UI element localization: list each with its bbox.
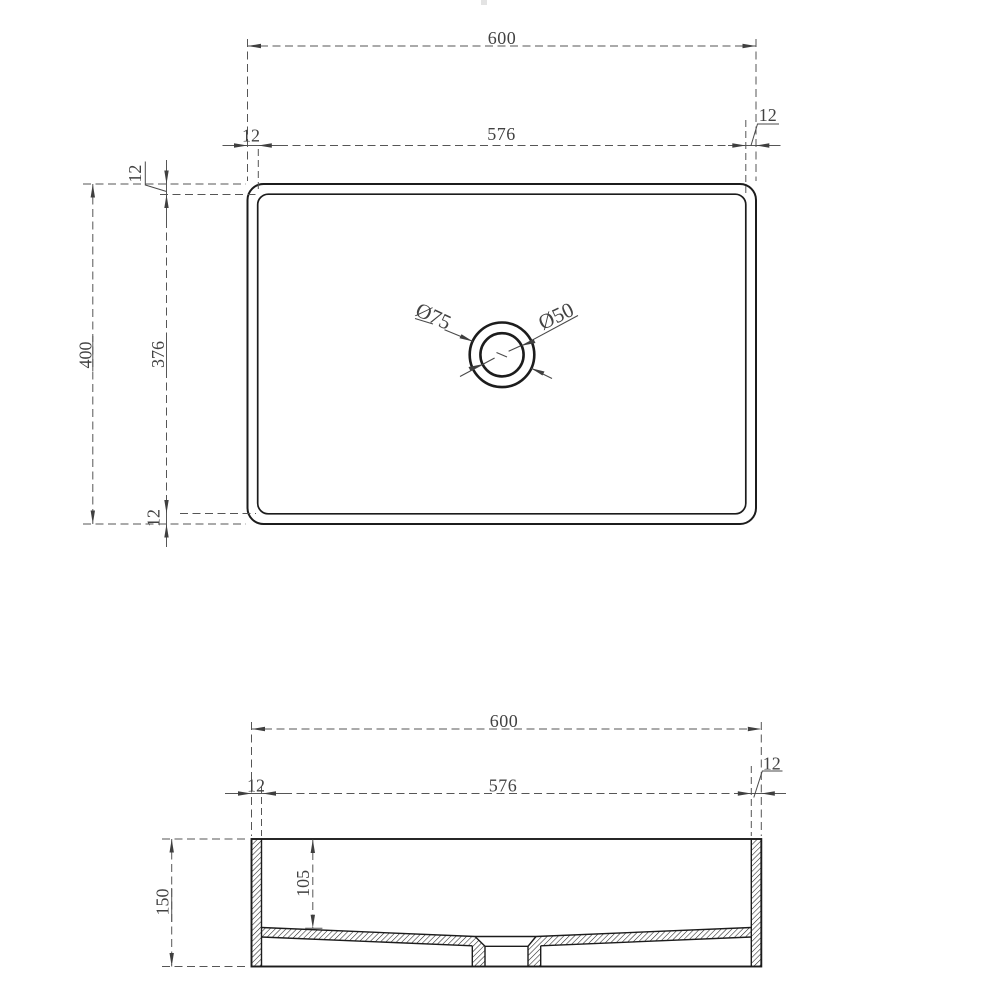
svg-text:576: 576 xyxy=(487,124,516,144)
svg-text:400: 400 xyxy=(76,342,96,369)
svg-text:12: 12 xyxy=(759,105,777,125)
svg-text:150: 150 xyxy=(153,889,173,916)
svg-text:12: 12 xyxy=(144,509,164,527)
svg-text:12: 12 xyxy=(247,776,265,796)
svg-text:12: 12 xyxy=(763,754,781,774)
svg-text:376: 376 xyxy=(148,341,168,368)
svg-text:12: 12 xyxy=(125,165,145,183)
svg-text:576: 576 xyxy=(489,776,518,796)
svg-text:105: 105 xyxy=(293,870,313,897)
svg-text:600: 600 xyxy=(490,711,519,731)
svg-text:600: 600 xyxy=(488,28,517,48)
svg-text:12: 12 xyxy=(242,126,260,146)
